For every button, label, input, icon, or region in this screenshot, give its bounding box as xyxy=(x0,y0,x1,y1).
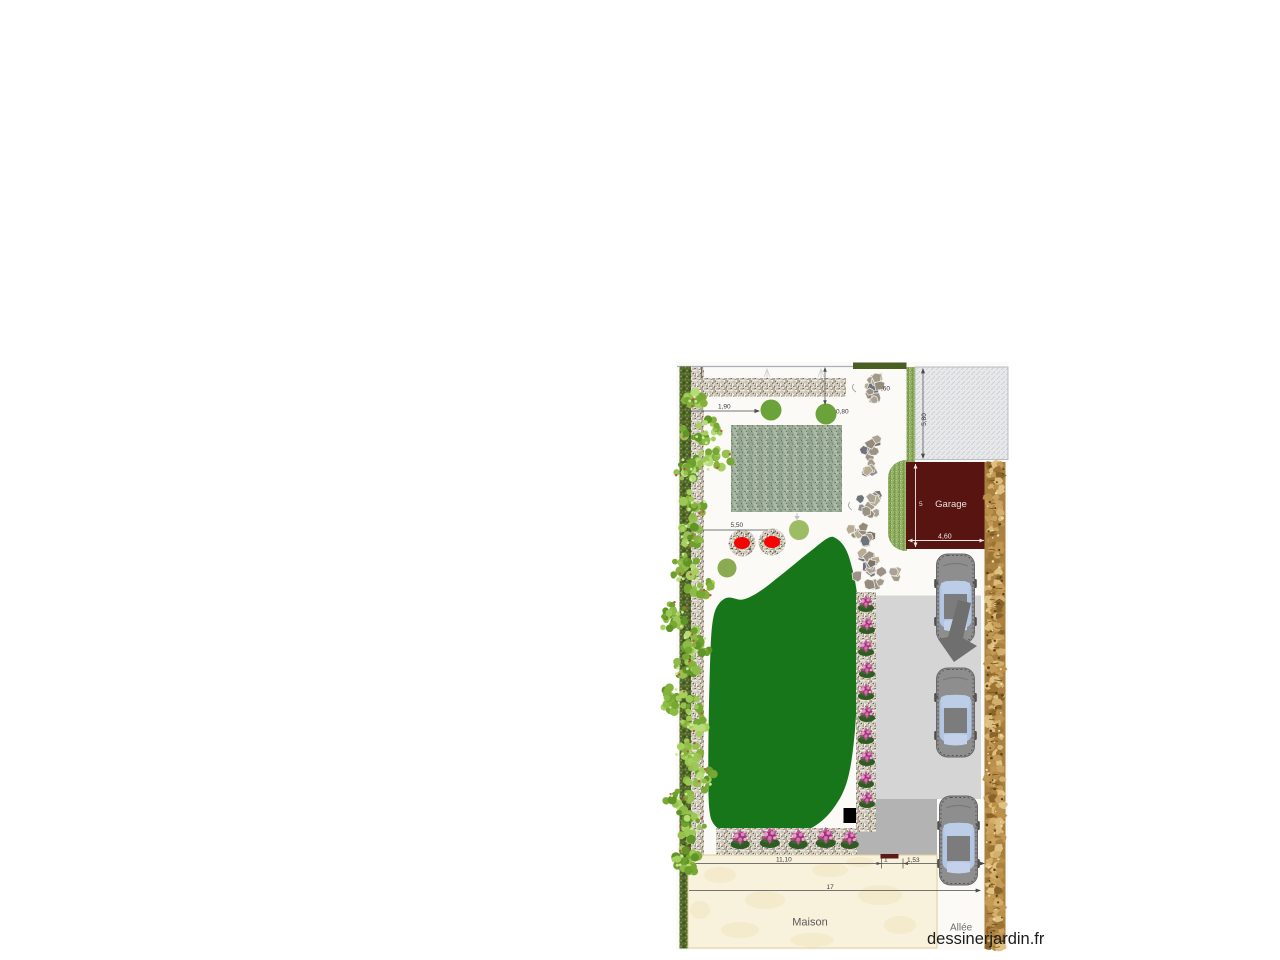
svg-text:17: 17 xyxy=(827,884,835,891)
svg-text:11,10: 11,10 xyxy=(776,857,792,864)
svg-text:5,80: 5,80 xyxy=(921,413,928,426)
svg-text:0,80: 0,80 xyxy=(836,409,849,416)
svg-text:4,60: 4,60 xyxy=(938,534,952,541)
svg-text:,60: ,60 xyxy=(881,386,890,393)
svg-text:1,53: 1,53 xyxy=(907,857,920,864)
svg-text:Garage: Garage xyxy=(935,499,967,510)
svg-text:dessinerjardin.fr: dessinerjardin.fr xyxy=(927,930,1045,948)
svg-text:5,50: 5,50 xyxy=(731,522,744,529)
svg-text:1,90: 1,90 xyxy=(718,404,731,411)
svg-text:Maison: Maison xyxy=(792,917,827,929)
svg-text:5: 5 xyxy=(919,501,923,508)
